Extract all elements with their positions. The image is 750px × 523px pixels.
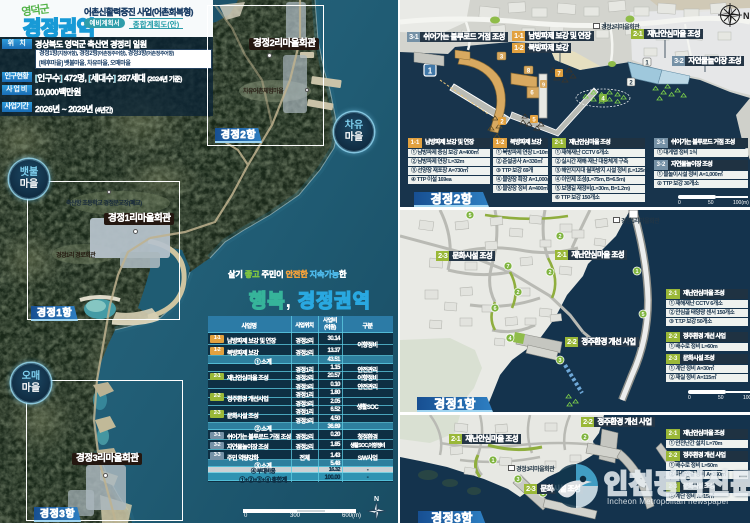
svg-text:2: 2 xyxy=(548,270,551,276)
svg-text:1: 1 xyxy=(491,458,494,464)
svg-text:5: 5 xyxy=(468,213,471,219)
svg-text:6: 6 xyxy=(493,306,496,312)
svg-text:5: 5 xyxy=(641,312,644,318)
svg-text:2: 2 xyxy=(583,435,586,441)
svg-text:1: 1 xyxy=(635,269,638,275)
svg-text:2: 2 xyxy=(516,290,519,296)
svg-text:7: 7 xyxy=(506,264,509,270)
svg-text:2: 2 xyxy=(558,234,561,240)
svg-text:3: 3 xyxy=(516,477,519,483)
svg-text:1: 1 xyxy=(428,67,433,76)
svg-text:3: 3 xyxy=(558,358,561,364)
svg-text:9: 9 xyxy=(542,83,545,89)
svg-text:N: N xyxy=(743,11,750,21)
